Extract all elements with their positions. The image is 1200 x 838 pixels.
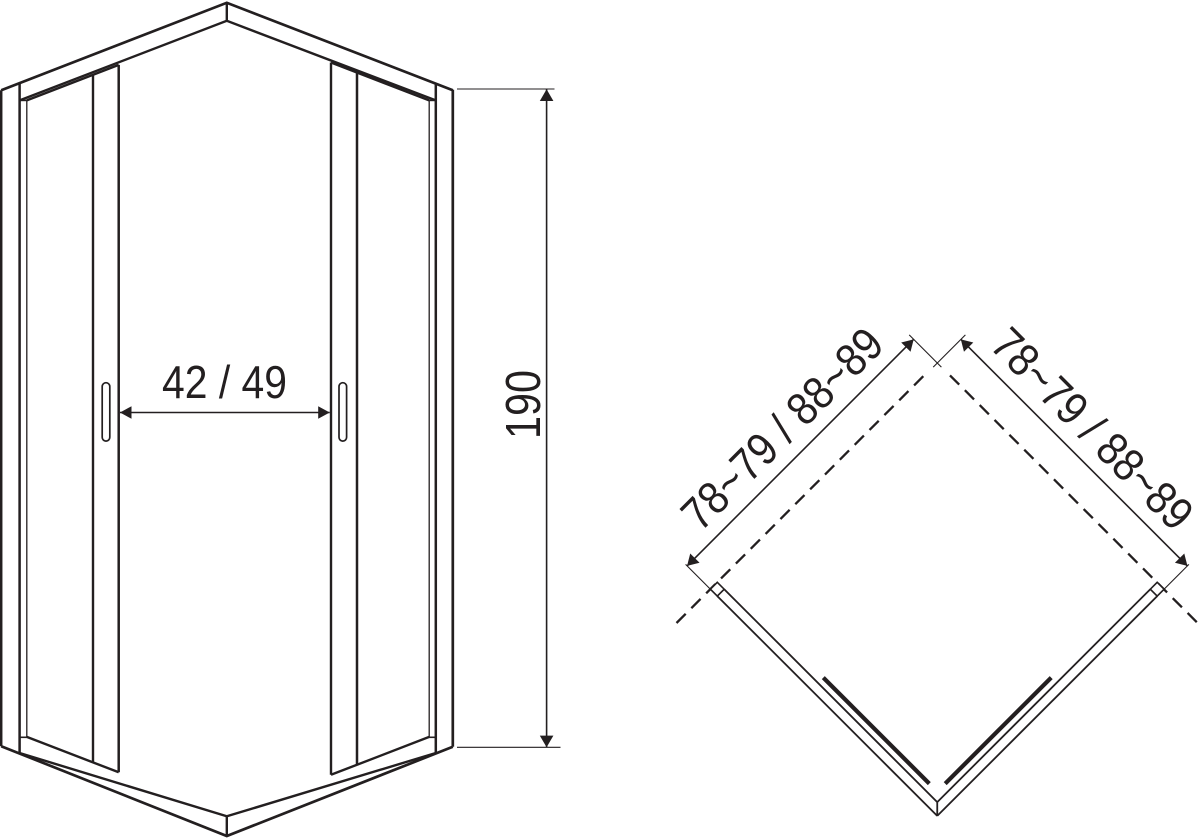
svg-text:42 / 49: 42 / 49 xyxy=(162,356,287,408)
svg-text:190: 190 xyxy=(497,370,551,439)
